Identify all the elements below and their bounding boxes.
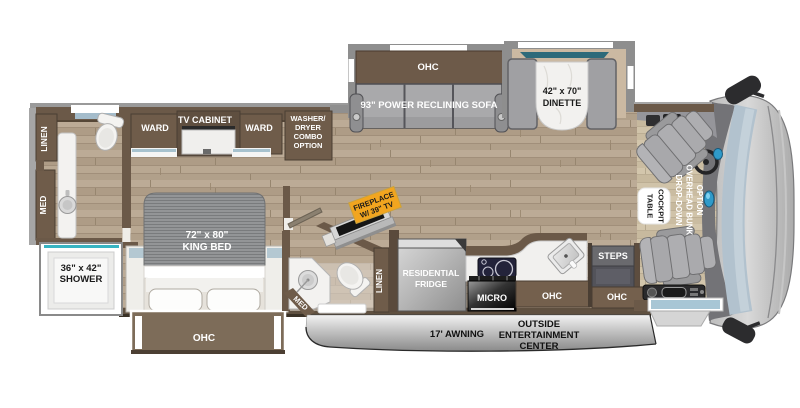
- svg-text:LINEN: LINEN: [375, 269, 384, 293]
- svg-text:OHC: OHC: [417, 62, 438, 73]
- svg-text:TABLE: TABLE: [646, 194, 655, 218]
- svg-text:RESIDENTIAL: RESIDENTIAL: [403, 268, 460, 278]
- svg-text:WARD: WARD: [141, 123, 169, 133]
- svg-text:MICRO: MICRO: [477, 293, 507, 303]
- svg-text:LINEN: LINEN: [39, 126, 49, 152]
- svg-text:STEPS: STEPS: [598, 251, 628, 261]
- svg-text:OHC: OHC: [193, 333, 215, 344]
- svg-text:COCKPIT: COCKPIT: [657, 189, 666, 223]
- svg-text:DROP-DOWN: DROP-DOWN: [674, 174, 683, 225]
- svg-text:72" x 80": 72" x 80": [186, 230, 229, 241]
- svg-text:FRIDGE: FRIDGE: [415, 279, 447, 289]
- svg-text:WASHER/: WASHER/: [290, 114, 326, 123]
- svg-text:OHC: OHC: [542, 291, 563, 301]
- svg-text:DINETTE: DINETTE: [543, 98, 582, 108]
- svg-text:OVERHEAD BUNK: OVERHEAD BUNK: [685, 165, 694, 236]
- svg-text:COMBO: COMBO: [294, 132, 323, 141]
- svg-text:CENTER: CENTER: [519, 341, 558, 352]
- svg-text:OPTION: OPTION: [294, 141, 323, 150]
- svg-text:OPTION: OPTION: [695, 185, 704, 216]
- svg-text:OUTSIDE: OUTSIDE: [518, 319, 560, 330]
- svg-text:OHC: OHC: [607, 292, 628, 302]
- svg-text:SHOWER: SHOWER: [60, 274, 103, 285]
- svg-text:42" x 70": 42" x 70": [543, 86, 582, 96]
- svg-text:93" POWER RECLINING SOFA: 93" POWER RECLINING SOFA: [361, 100, 498, 111]
- svg-text:DRYER: DRYER: [295, 123, 322, 132]
- svg-text:17' AWNING: 17' AWNING: [430, 329, 484, 340]
- svg-text:36" x 42": 36" x 42": [61, 263, 102, 274]
- svg-text:MED: MED: [38, 196, 48, 215]
- svg-text:KING BED: KING BED: [183, 242, 232, 253]
- svg-text:TV CABINET: TV CABINET: [178, 115, 233, 125]
- svg-text:ENTERTAINMENT: ENTERTAINMENT: [499, 330, 580, 341]
- svg-text:WARD: WARD: [245, 123, 273, 133]
